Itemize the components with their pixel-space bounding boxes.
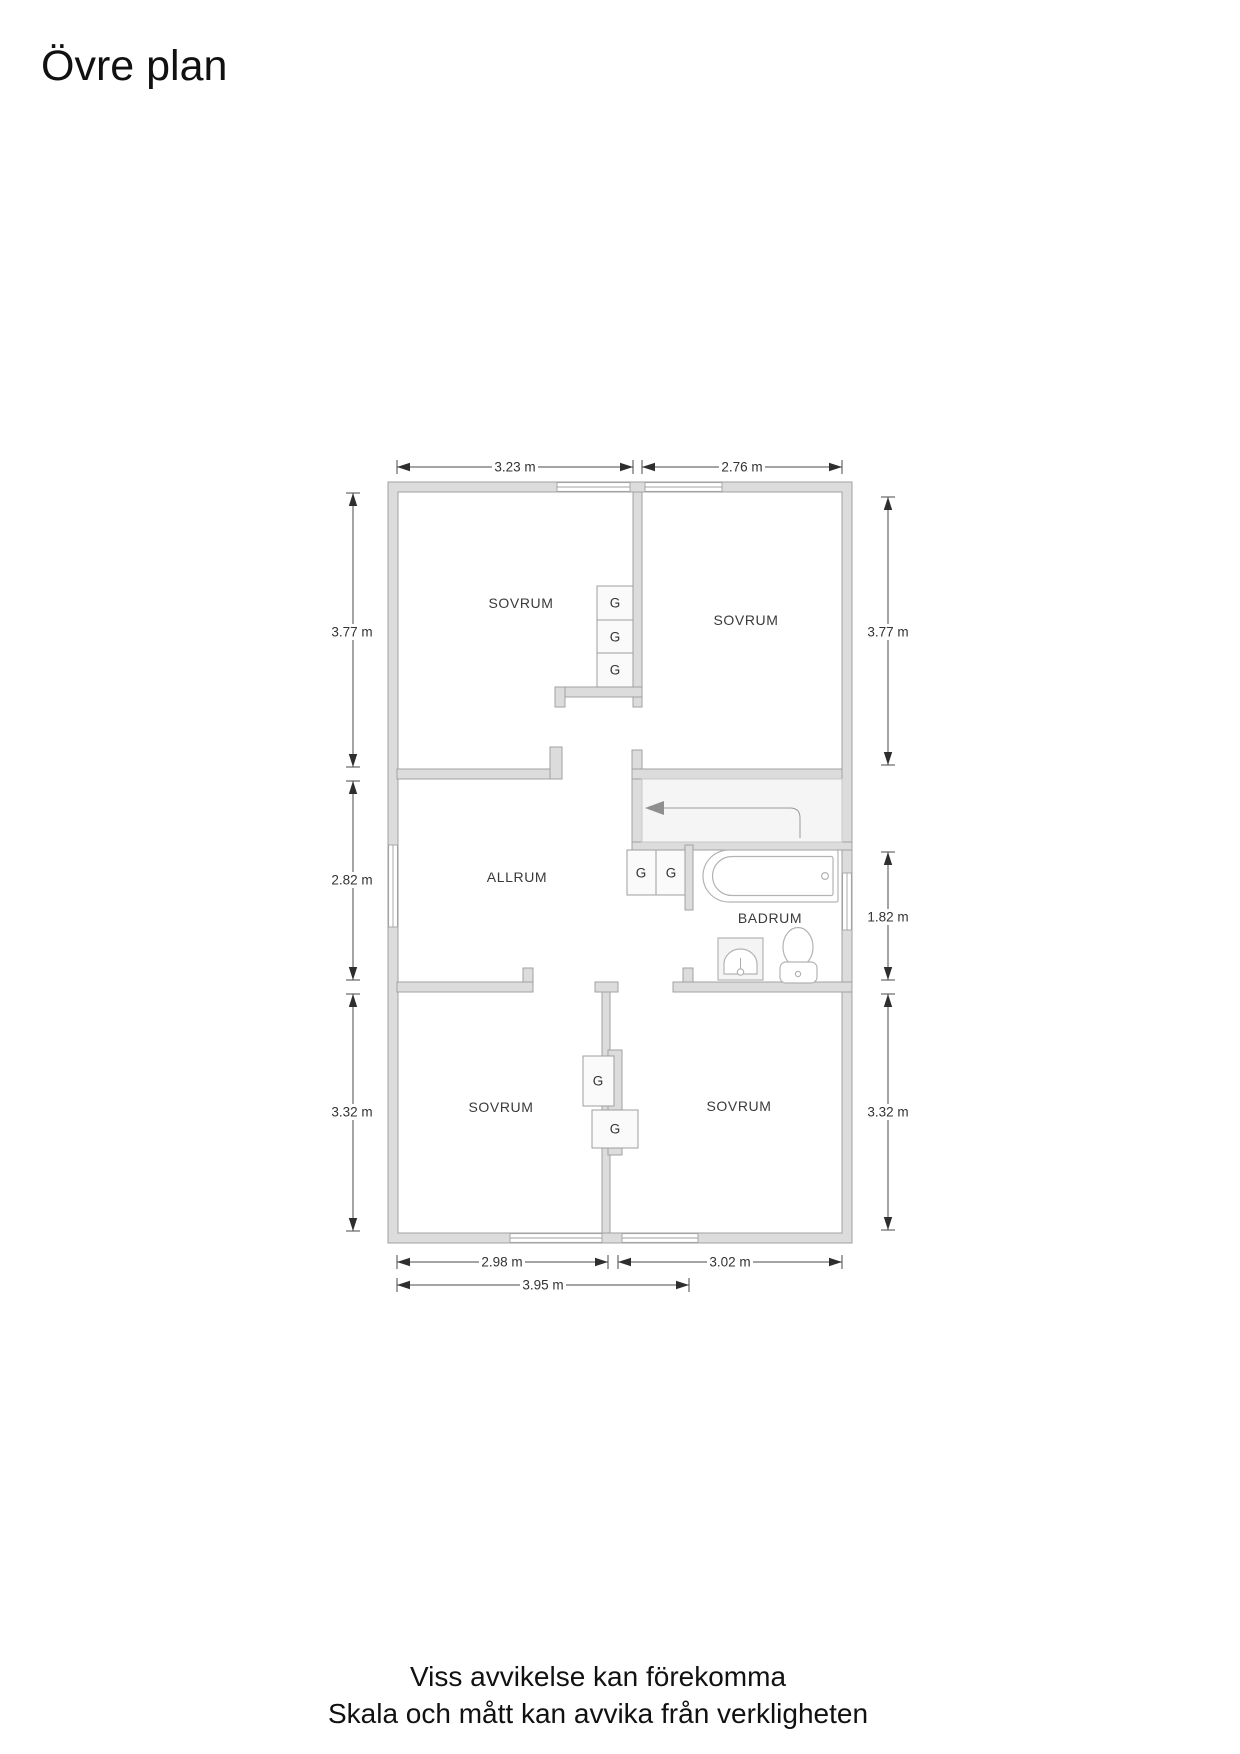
dimension-right-bottom: 3.32 m bbox=[866, 994, 911, 1230]
dimension-value: 3.95 m bbox=[522, 1278, 563, 1293]
window-top-right bbox=[645, 483, 722, 492]
room-label-badrum: BADRUM bbox=[738, 910, 802, 926]
floor-plan-page: Övre plan bbox=[0, 0, 1240, 1754]
window-bottom-right bbox=[622, 1234, 698, 1243]
wardrobe-label: G bbox=[636, 866, 647, 881]
floor-plan-drawing: G G G G G G G bbox=[0, 0, 1240, 1754]
dimension-top-right-width: 2.76 m bbox=[642, 459, 842, 475]
toilet-icon bbox=[780, 928, 817, 984]
stairwell bbox=[642, 779, 842, 842]
wardrobe-label: G bbox=[610, 1122, 621, 1137]
window-right-badrum bbox=[843, 873, 852, 930]
dimension-left-top: 3.77 m bbox=[330, 493, 375, 767]
dimension-value: 3.32 m bbox=[867, 1105, 908, 1120]
room-label-allrum: ALLRUM bbox=[487, 869, 547, 885]
dimension-right-top: 3.77 m bbox=[866, 497, 911, 765]
dimension-value: 3.02 m bbox=[709, 1255, 750, 1270]
window-bottom-left bbox=[510, 1234, 602, 1243]
dimension-value: 3.23 m bbox=[494, 460, 535, 475]
wardrobe-label: G bbox=[666, 866, 677, 881]
dimension-left-middle: 2.82 m bbox=[330, 781, 375, 980]
dimension-bottom-left-width: 2.98 m bbox=[397, 1254, 608, 1270]
dimension-left-bottom: 3.32 m bbox=[330, 994, 375, 1231]
window-left-allrum bbox=[389, 845, 398, 927]
window-top-left bbox=[557, 483, 630, 492]
wardrobe-pair-hall: G G bbox=[627, 850, 685, 895]
disclaimer-line-1: Viss avvikelse kan förekomma bbox=[0, 1658, 1196, 1695]
dimension-value: 2.76 m bbox=[721, 460, 762, 475]
room-label-sovrum-bottom-left: SOVRUM bbox=[468, 1099, 533, 1115]
dimension-value: 2.98 m bbox=[481, 1255, 522, 1270]
dimension-right-middle: 1.82 m bbox=[866, 852, 911, 980]
wardrobe-label: G bbox=[610, 596, 621, 611]
dimension-value: 3.77 m bbox=[331, 625, 372, 640]
dimension-top-left-width: 3.23 m bbox=[397, 459, 633, 475]
dimension-bottom-right-width: 3.02 m bbox=[618, 1254, 842, 1270]
wardrobe-label: G bbox=[593, 1074, 604, 1089]
bathtub-icon bbox=[703, 850, 838, 902]
room-label-sovrum-top-left: SOVRUM bbox=[488, 595, 553, 611]
disclaimer-line-2: Skala och mått kan avvika från verklighe… bbox=[0, 1695, 1196, 1732]
wardrobe-stack-top-bedroom: G G G bbox=[597, 586, 633, 687]
room-label-sovrum-bottom-right: SOVRUM bbox=[706, 1098, 771, 1114]
disclaimer: Viss avvikelse kan förekomma Skala och m… bbox=[0, 1658, 1196, 1732]
sink-icon bbox=[718, 938, 763, 980]
wardrobe-label: G bbox=[610, 663, 621, 678]
dimension-value: 2.82 m bbox=[331, 873, 372, 888]
room-label-sovrum-top-right: SOVRUM bbox=[713, 612, 778, 628]
wardrobe-label: G bbox=[610, 630, 621, 645]
dimension-value: 3.32 m bbox=[331, 1105, 372, 1120]
dimension-value: 1.82 m bbox=[867, 910, 908, 925]
dimension-bottom-total-width: 3.95 m bbox=[397, 1277, 689, 1293]
wardrobes-bottom-bedrooms: G G bbox=[583, 1056, 638, 1148]
dimension-value: 3.77 m bbox=[867, 625, 908, 640]
